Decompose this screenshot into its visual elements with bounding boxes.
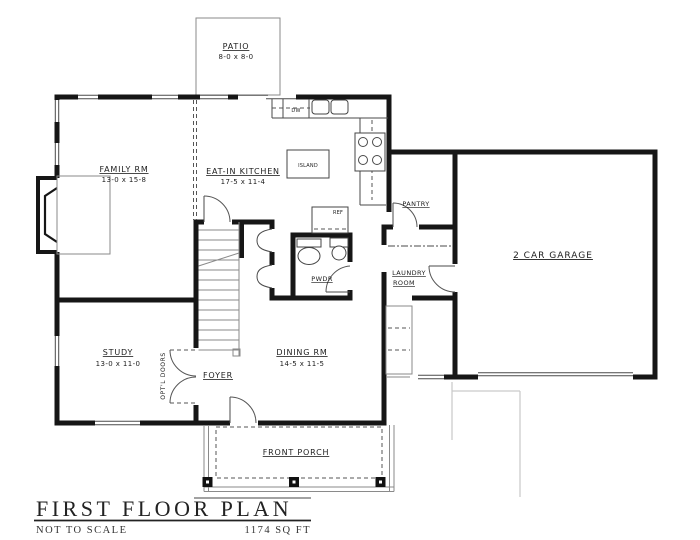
family-room-label: FAMILY RM [99, 165, 148, 174]
toilet-tank [297, 239, 321, 247]
family-room-dims: 13-0 x 15-8 [102, 176, 147, 184]
patio-label: PATIO [223, 42, 250, 51]
laundry-label-line1: LAUNDRY [392, 269, 426, 277]
porch-post [289, 477, 299, 487]
kitchen-label: EAT-IN KITCHEN [206, 167, 280, 176]
area-note: 1174 SQ FT [244, 525, 311, 536]
patio-dims: 8-0 x 8-0 [218, 53, 253, 61]
porch-post [376, 477, 386, 487]
dining-room-label: DINING RM [276, 348, 327, 357]
island-label: ISLAND [298, 163, 318, 169]
pedestal-sink [332, 246, 346, 260]
scale-note: NOT TO SCALE [36, 525, 128, 536]
toilet-bowl [298, 248, 320, 265]
plan-title: FIRST FLOOR PLAN [36, 496, 292, 521]
sink-basin [312, 100, 329, 114]
dishwasher-label: DW [291, 108, 300, 114]
study-dims: 13-0 x 11-0 [96, 360, 141, 368]
pantry-label: PANTRY [402, 200, 429, 208]
refrigerator-label: REF [333, 210, 343, 216]
optional-doors-label: OPT'L DOORS [160, 352, 167, 400]
study-label: STUDY [103, 348, 133, 357]
floor-plan-page: PATIO 8-0 x 8-0 FAMILY RM 13-0 x 15-8 EA… [0, 0, 700, 540]
background [0, 0, 700, 540]
pwdr-label: PWDR [311, 275, 333, 283]
garage-label: 2 CAR GARAGE [513, 251, 593, 261]
laundry-label-line2: ROOM [393, 279, 415, 287]
floor-plan-drawing: PATIO 8-0 x 8-0 FAMILY RM 13-0 x 15-8 EA… [0, 0, 700, 540]
porch-post [203, 477, 213, 487]
foyer-label: FOYER [203, 371, 233, 380]
front-porch-label: FRONT PORCH [263, 448, 330, 457]
kitchen-dims: 17-5 x 11-4 [221, 178, 266, 186]
sink-basin [331, 100, 348, 114]
dining-room-dims: 14-5 x 11-5 [280, 360, 325, 368]
